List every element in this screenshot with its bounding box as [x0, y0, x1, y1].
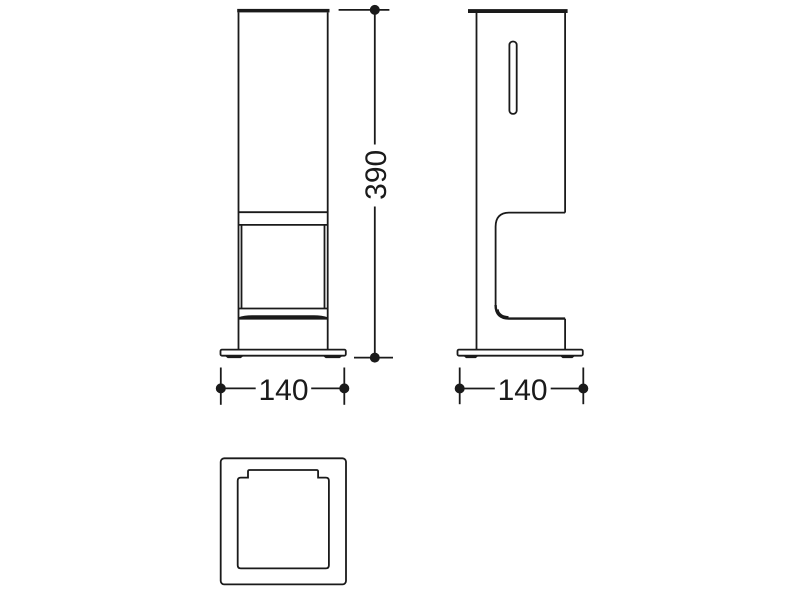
svg-text:140: 140: [498, 374, 548, 407]
svg-text:140: 140: [258, 374, 308, 407]
svg-text:390: 390: [360, 150, 393, 200]
